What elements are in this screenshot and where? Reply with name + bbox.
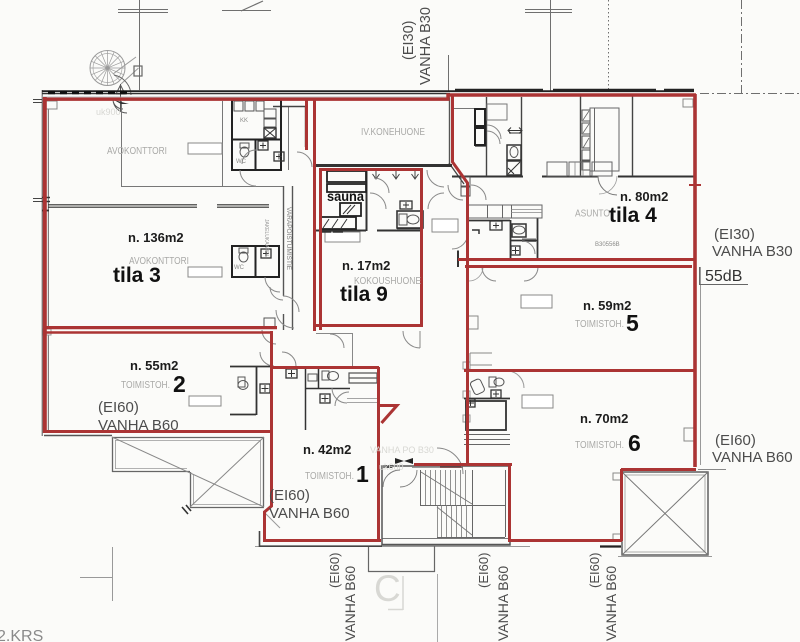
svg-text:6: 6 [628,430,641,456]
svg-text:IV.KONEHUONE: IV.KONEHUONE [361,126,425,138]
svg-text:55dB: 55dB [705,268,742,285]
svg-text:2.KRS: 2.KRS [0,628,43,642]
svg-text:AVOKONTTORI: AVOKONTTORI [107,145,167,157]
svg-text:1: 1 [356,461,369,487]
svg-text:(EI60): (EI60) [476,553,491,588]
svg-text:(EI60): (EI60) [269,487,310,504]
svg-text:uk900: uk900 [96,107,121,117]
svg-text:uk600: uk600 [379,462,404,472]
svg-text:VANHA B30: VANHA B30 [418,7,434,85]
svg-text:2: 2 [173,371,186,397]
svg-text:n. 59m2: n. 59m2 [583,298,631,313]
svg-text:5: 5 [626,310,639,336]
svg-text:TOIMISTOH.: TOIMISTOH. [305,470,354,482]
svg-text:n. 17m2: n. 17m2 [342,258,390,273]
svg-text:VANHA B60: VANHA B60 [495,566,511,641]
svg-text:sauna: sauna [327,188,364,204]
svg-text:KK: KK [240,118,248,124]
svg-text:JAKELUKAAPPI: JAKELUKAAPPI [263,219,269,256]
svg-text:WC: WC [236,159,247,165]
svg-text:n. 80m2: n. 80m2 [620,189,668,204]
svg-text:n. 55m2: n. 55m2 [130,358,178,373]
svg-text:TOIMISTOH.: TOIMISTOH. [575,318,624,330]
svg-text:(EI60): (EI60) [327,553,342,588]
svg-text:VANHA B60: VANHA B60 [269,505,350,522]
svg-text:VANHA B60: VANHA B60 [342,566,358,641]
svg-text:TOIMISTOH.: TOIMISTOH. [575,439,624,451]
svg-text:B30556B: B30556B [595,242,620,248]
svg-text:VANHA B60: VANHA B60 [603,566,619,641]
svg-text:(EI30): (EI30) [714,226,755,243]
svg-text:C: C [374,568,401,609]
svg-text:TOIMISTOH.: TOIMISTOH. [121,379,170,391]
svg-text:VARAPOISTUMISTIE: VARAPOISTUMISTIE [285,207,292,271]
svg-text:VANHA B60: VANHA B60 [712,449,793,466]
svg-text:n. 70m2: n. 70m2 [580,411,628,426]
svg-text:tila 4: tila 4 [609,204,657,227]
svg-text:(EI30): (EI30) [401,21,417,61]
svg-text:(EI60): (EI60) [587,553,602,588]
svg-text:VANHA B60: VANHA B60 [98,417,179,434]
svg-text:ASUNTO: ASUNTO [575,208,610,220]
svg-text:WC: WC [234,265,245,271]
svg-text:(EI60): (EI60) [98,399,139,416]
svg-text:tila 3: tila 3 [113,264,161,287]
svg-text:n. 136m2: n. 136m2 [128,230,184,245]
svg-text:VANHA B30: VANHA B30 [712,243,793,260]
svg-text:(EI60): (EI60) [715,432,756,449]
svg-text:tila 9: tila 9 [340,283,388,306]
svg-text:VANHA PO B30: VANHA PO B30 [370,445,434,455]
svg-text:n. 42m2: n. 42m2 [303,442,351,457]
